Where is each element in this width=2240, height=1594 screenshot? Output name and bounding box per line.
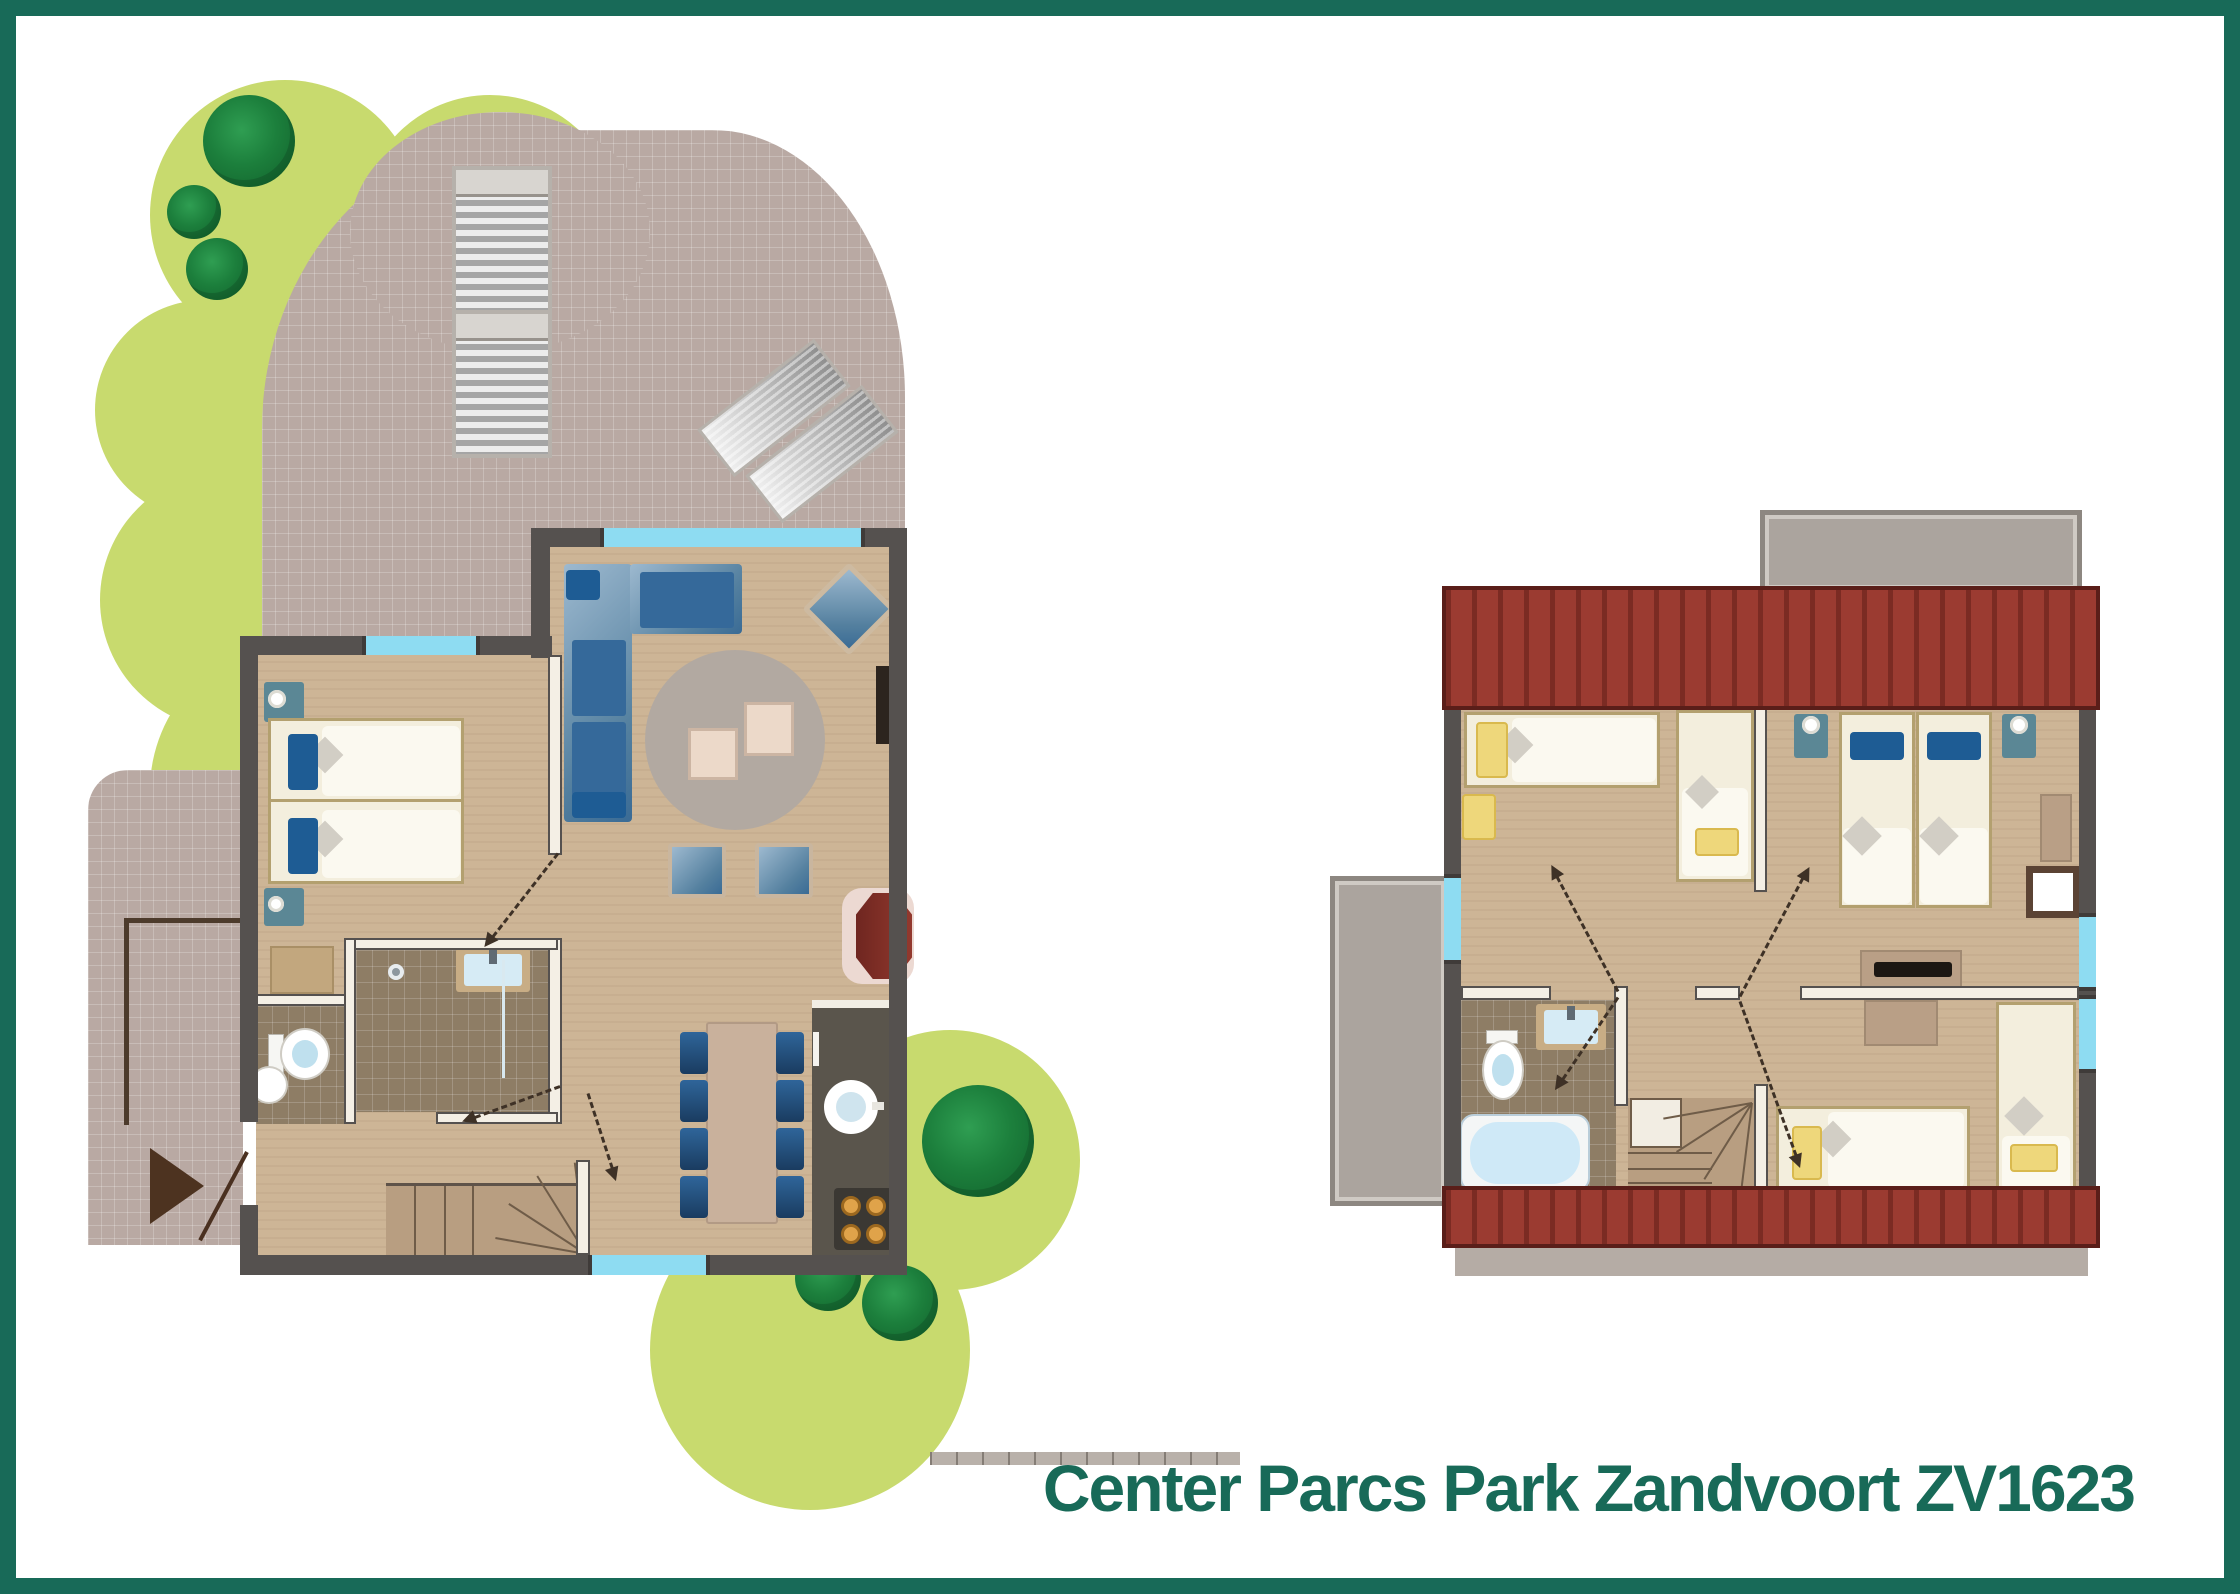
sofa-cushion <box>640 572 734 628</box>
lamp-icon <box>268 690 286 708</box>
bathtub-basin <box>1470 1122 1580 1184</box>
dining-table <box>706 1022 778 1224</box>
stair-tread <box>472 1186 474 1255</box>
floorplan-page: Center Parcs Park Zandvoort ZV1623 <box>0 0 2240 1594</box>
pillow <box>288 734 318 790</box>
faucet-icon <box>1567 1006 1575 1020</box>
sun-lounger-icon <box>452 310 552 458</box>
page-title: Center Parcs Park Zandvoort ZV1623 <box>800 1450 2134 1526</box>
dining-chair <box>680 1176 708 1218</box>
oven-handle <box>813 1032 819 1066</box>
porch-outline <box>124 918 249 1125</box>
pillow <box>1927 732 1981 760</box>
interior-wall <box>1461 986 1551 1000</box>
stair-tread <box>444 1186 446 1255</box>
dining-chair <box>776 1176 804 1218</box>
balcony-left <box>1330 876 1450 1206</box>
ottoman <box>668 843 726 898</box>
pillow <box>1695 828 1739 856</box>
hob-burner <box>866 1224 886 1244</box>
balcony-top <box>1760 510 2082 594</box>
sofa-pillow <box>566 570 600 600</box>
stair-tread <box>414 1186 416 1255</box>
tree-icon <box>186 238 248 300</box>
coffee-table <box>744 702 794 756</box>
shower-wall <box>344 938 558 950</box>
faucet-icon <box>872 1102 884 1110</box>
desk <box>1462 794 1496 840</box>
hob-burner <box>841 1224 861 1244</box>
dining-chair <box>680 1080 708 1122</box>
shower-wall <box>436 1112 558 1124</box>
roof-strip <box>1442 1186 2100 1248</box>
bed-sheet <box>1512 718 1656 782</box>
kitchen-separator <box>812 1000 890 1008</box>
pillow <box>2010 1144 2058 1172</box>
lamp-icon <box>2010 716 2028 734</box>
window <box>1444 874 1461 964</box>
tv-icon <box>876 666 890 744</box>
storage-cabinet <box>270 946 334 994</box>
tree-icon <box>922 1085 1034 1197</box>
exterior-wall <box>240 636 258 1122</box>
toilet-bowl <box>292 1040 318 1068</box>
roof-shadow <box>1455 1246 2088 1276</box>
pillow <box>1476 722 1508 778</box>
ottoman <box>755 843 813 898</box>
bed-divider <box>268 799 464 802</box>
hob-burner <box>866 1196 886 1216</box>
stair-newel-wall <box>576 1160 590 1255</box>
shower-head-icon <box>388 964 404 980</box>
sofa-pillow <box>572 792 626 818</box>
dining-chair <box>776 1080 804 1122</box>
exterior-wall <box>240 1255 907 1275</box>
window <box>600 528 865 547</box>
toilet-bowl <box>1492 1054 1514 1086</box>
window <box>362 636 480 655</box>
stair-tread <box>1628 1168 1712 1170</box>
bed-sheet <box>1828 1112 1964 1188</box>
sofa-cushion <box>572 722 626 796</box>
lamp-icon <box>1802 716 1820 734</box>
entrance-arrow-icon <box>150 1148 204 1224</box>
tree-icon <box>203 95 295 187</box>
shower-wall <box>344 938 356 1124</box>
stair-tread <box>1628 1182 1712 1184</box>
window <box>588 1255 710 1275</box>
tree-icon <box>862 1265 938 1341</box>
dresser <box>1864 1000 1938 1046</box>
dining-chair <box>680 1032 708 1074</box>
shower-drain-line <box>502 960 505 1078</box>
partition-wall <box>1754 706 1767 892</box>
stair-tread <box>1628 1152 1712 1154</box>
tv-icon <box>1874 962 1952 977</box>
exterior-wall <box>889 528 907 1275</box>
wc-wall <box>256 994 348 1006</box>
window <box>2079 913 2096 991</box>
interior-wall <box>1800 986 2079 1000</box>
dining-chair <box>776 1032 804 1074</box>
interior-wall <box>548 938 562 1124</box>
lamp-icon <box>268 896 284 912</box>
interior-wall <box>1614 986 1628 1106</box>
staircase <box>386 1186 588 1255</box>
coffee-table <box>688 728 738 780</box>
pillow <box>288 818 318 874</box>
bed-sheet <box>322 810 460 878</box>
kitchen-sink-bowl <box>836 1092 866 1122</box>
interior-wall <box>548 655 562 855</box>
pillow <box>1850 732 1904 760</box>
interior-wall <box>1695 986 1740 1000</box>
tree-icon <box>167 185 221 239</box>
roof-strip <box>1442 586 2100 710</box>
dining-chair <box>776 1128 804 1170</box>
hob-burner <box>841 1196 861 1216</box>
dresser <box>2040 794 2072 862</box>
wall-niche <box>2026 866 2080 918</box>
staircase-edge <box>386 1183 588 1186</box>
stair-landing <box>1630 1098 1682 1148</box>
window <box>2079 995 2096 1073</box>
sofa-cushion <box>572 640 626 716</box>
bed-sheet <box>322 726 460 796</box>
faucet-icon <box>489 950 497 964</box>
sun-lounger-icon <box>452 166 552 314</box>
stair-newel-wall <box>1754 1084 1768 1190</box>
dining-chair <box>680 1128 708 1170</box>
